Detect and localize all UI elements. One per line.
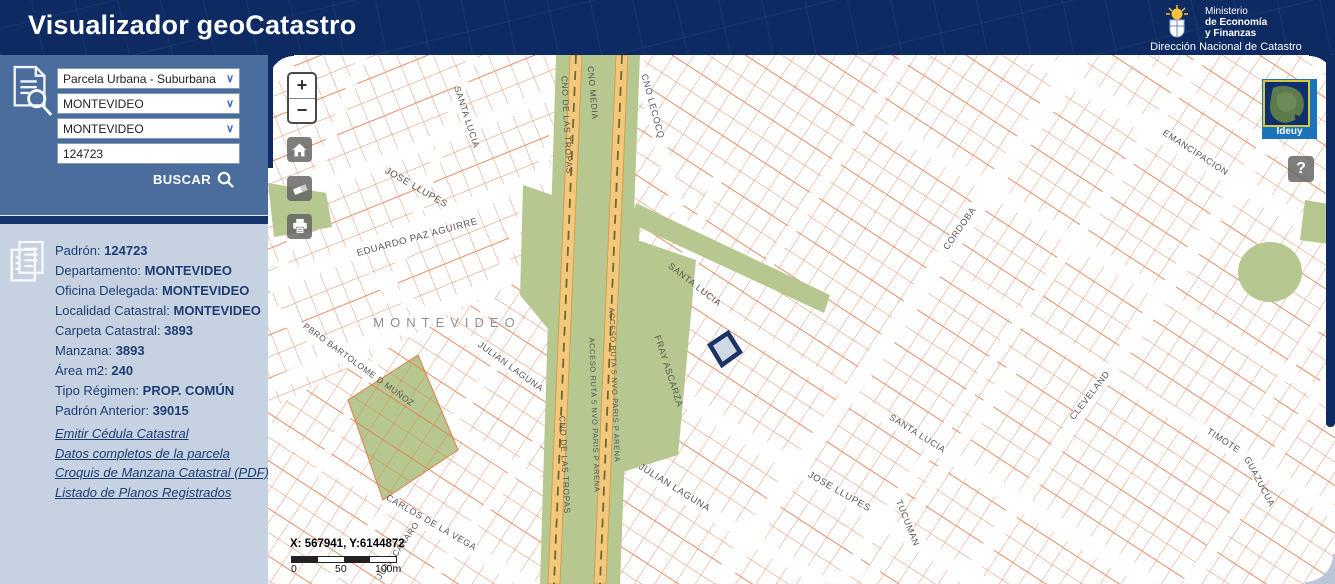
ministry-logo-block: Ministerio de Economía y Finanzas Direcc… bbox=[1131, 3, 1321, 53]
basemap-label: Ideuy bbox=[1265, 125, 1314, 138]
magnifier-icon bbox=[217, 171, 234, 188]
uruguay-crest-icon bbox=[1159, 5, 1195, 41]
parcel-link[interactable]: Datos completos de la parcela bbox=[55, 446, 269, 466]
info-row: Localidad Catastral: MONTEVIDEO bbox=[55, 301, 261, 321]
scale-start-label: 0 bbox=[291, 563, 297, 575]
locality-select-value: MONTEVIDEO bbox=[63, 122, 144, 136]
zoom-out-button[interactable]: − bbox=[289, 99, 315, 123]
map-edge-decoration bbox=[1326, 55, 1335, 427]
info-row: Padrón: 124723 bbox=[55, 241, 261, 261]
map-viewport[interactable]: MONTEVIDEO SANTA LUCIACNO MEDIACNO LECOC… bbox=[268, 55, 1335, 584]
chevron-down-icon: ∨ bbox=[226, 97, 234, 110]
department-select-value: MONTEVIDEO bbox=[63, 97, 144, 111]
parcel-link[interactable]: Croquis de Manzana Catastral (PDF) bbox=[55, 465, 269, 485]
satellite-thumbnail bbox=[1265, 82, 1308, 125]
padron-input[interactable] bbox=[57, 143, 240, 164]
info-row: Tipo Régimen: PROP. COMÚN bbox=[55, 381, 261, 401]
map-corner-decoration bbox=[1309, 55, 1335, 81]
coordinates-readout: X: 567941, Y:6144872 bbox=[290, 538, 405, 550]
chevron-down-icon: ∨ bbox=[226, 72, 234, 85]
documents-icon bbox=[6, 238, 54, 296]
scale-mid-label: 50 bbox=[335, 563, 347, 575]
sidebar: Parcela Urbana - Suburbana ∨ MONTEVIDEO … bbox=[0, 55, 269, 584]
info-row: Oficina Delegada: MONTEVIDEO bbox=[55, 281, 261, 301]
scale-bar-graphic bbox=[291, 556, 397, 563]
chevron-down-icon: ∨ bbox=[226, 122, 234, 135]
clear-selection-button[interactable] bbox=[287, 176, 312, 201]
buscar-button[interactable]: BUSCAR bbox=[147, 170, 240, 189]
parcel-info-rows: Padrón: 124723Departamento: MONTEVIDEOOf… bbox=[55, 241, 261, 421]
eraser-icon bbox=[291, 181, 309, 197]
scale-bar: 0 50 100m bbox=[291, 556, 397, 563]
parcel-info-panel: Padrón: 124723Departamento: MONTEVIDEOOf… bbox=[0, 223, 268, 584]
map-corner-decoration bbox=[1305, 554, 1335, 584]
direccion-catastro-label: Dirección Nacional de Catastro bbox=[1131, 41, 1321, 53]
document-search-icon bbox=[8, 65, 54, 117]
parcel-link[interactable]: Emitir Cédula Catastral bbox=[55, 426, 269, 446]
layer-select-value: Parcela Urbana - Suburbana bbox=[63, 72, 216, 86]
layer-select[interactable]: Parcela Urbana - Suburbana ∨ bbox=[57, 68, 240, 89]
zoom-control: + − bbox=[287, 72, 317, 124]
home-extent-button[interactable] bbox=[287, 137, 312, 162]
department-select[interactable]: MONTEVIDEO ∨ bbox=[57, 93, 240, 114]
info-row: Manzana: 3893 bbox=[55, 341, 261, 361]
map-edge-decoration bbox=[268, 55, 273, 168]
locality-label: MONTEVIDEO bbox=[373, 315, 520, 330]
parcel-action-links: Emitir Cédula CatastralDatos completos d… bbox=[55, 426, 269, 504]
search-panel: Parcela Urbana - Suburbana ∨ MONTEVIDEO … bbox=[0, 55, 268, 215]
ministry-name: Ministerio de Economía y Finanzas bbox=[1205, 6, 1267, 39]
header: Visualizador geoCatastro Ministerio de E… bbox=[0, 0, 1335, 56]
scale-end-label: 100m bbox=[375, 563, 401, 575]
parcel-link[interactable]: Listado de Planos Registrados bbox=[55, 485, 269, 505]
info-row: Área m2: 240 bbox=[55, 361, 261, 381]
printer-icon bbox=[291, 218, 309, 235]
zoom-in-button[interactable]: + bbox=[289, 74, 315, 99]
info-row: Carpeta Catastral: 3893 bbox=[55, 321, 261, 341]
locality-select[interactable]: MONTEVIDEO ∨ bbox=[57, 118, 240, 139]
help-button[interactable]: ? bbox=[1288, 156, 1314, 182]
cadastral-map[interactable]: MONTEVIDEO SANTA LUCIACNO MEDIACNO LECOC… bbox=[268, 55, 1335, 584]
info-row: Departamento: MONTEVIDEO bbox=[55, 261, 261, 281]
basemap-toggle[interactable]: Ideuy bbox=[1262, 79, 1317, 139]
page-title: Visualizador geoCatastro bbox=[28, 10, 356, 41]
info-row: Padrón Anterior: 39015 bbox=[55, 401, 261, 421]
geocatastro-app: Visualizador geoCatastro Ministerio de E… bbox=[0, 0, 1335, 584]
home-icon bbox=[291, 142, 308, 158]
print-button[interactable] bbox=[287, 214, 312, 239]
